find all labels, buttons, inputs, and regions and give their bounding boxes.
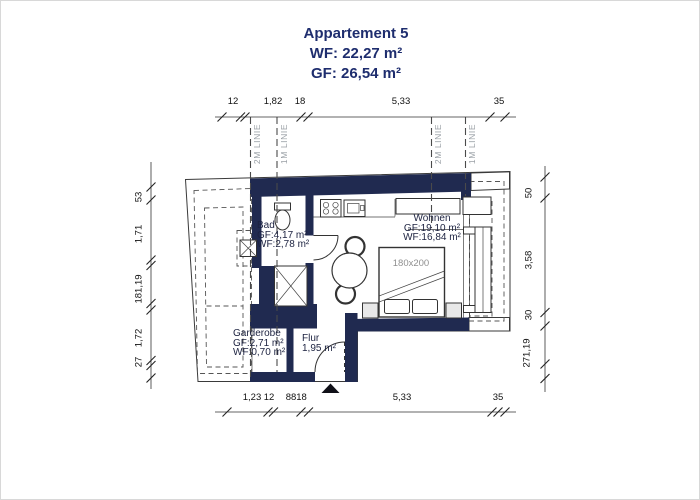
- height-line-label-2m-right: 2M LINIE: [433, 124, 443, 164]
- stove-fixture: [321, 200, 342, 218]
- pillow: [413, 300, 438, 314]
- pillow: [385, 300, 410, 314]
- entrance-arrow-icon: [322, 384, 340, 394]
- dim-bottom-3: 18: [296, 392, 307, 403]
- apartment-wf: WF: 22,27 m²: [278, 44, 434, 64]
- title-block: Appartement 5 WF: 22,27 m² GF: 26,54 m²: [278, 24, 434, 84]
- room-label-garderobe: Garderobe GF:2,71 m² WF:0,70 m²: [233, 329, 285, 358]
- dim-top-2: 18: [295, 96, 306, 107]
- nightstand: [363, 303, 379, 318]
- dim-left-1: 1,71: [134, 225, 145, 244]
- dim-left-2: 181,19: [134, 274, 145, 303]
- dormer-niche: [463, 197, 491, 215]
- apartment-gf: GF: 26,54 m²: [278, 64, 434, 84]
- dim-bottom-5: 35: [493, 392, 504, 403]
- dim-left-4: 27: [134, 357, 145, 368]
- table-chairs: [332, 237, 367, 304]
- round-table: [332, 253, 367, 288]
- dim-right-2: 30: [524, 310, 535, 321]
- dim-right-0: 50: [524, 188, 535, 199]
- dim-bottom-4: 5,33: [393, 392, 412, 403]
- chimney-shaft: [240, 240, 257, 257]
- room-label-wohnen: Wohnen GF:19,10 m² WF:16,84 m²: [398, 214, 466, 243]
- wohnen-wf: WF:16,84 m²: [398, 233, 466, 243]
- wardrobe-counter: [396, 199, 460, 215]
- bed-size-label: 180x200: [391, 259, 431, 269]
- floor-plan-page: Appartement 5 WF: 22,27 m² GF: 26,54 m² …: [0, 0, 700, 500]
- room-label-bad: Bad GF:4,17 m² WF:2,78 m²: [257, 221, 309, 250]
- dim-right-1: 3,58: [524, 251, 535, 270]
- height-line-label-2m-left: 2M LINIE: [252, 124, 262, 164]
- dim-bottom-2: 88: [286, 392, 297, 403]
- bad-wf: WF:2,78 m²: [257, 240, 309, 250]
- apartment-title: Appartement 5: [278, 24, 434, 44]
- dim-right-3: 271,19: [522, 338, 533, 367]
- room-label-flur: Flur 1,95 m²: [302, 334, 336, 353]
- dim-top-4: 35: [494, 96, 505, 107]
- dim-top-3: 5,33: [392, 96, 411, 107]
- bathroom-door: [314, 236, 339, 261]
- shower-fixture: [275, 266, 308, 306]
- sink-fixture: [344, 200, 365, 217]
- dim-left-3: 1,72: [134, 329, 145, 348]
- dim-left-0: 53: [134, 192, 145, 203]
- dim-top-1: 1,82: [264, 96, 283, 107]
- height-line-label-1m-left: 1M LINIE: [279, 124, 289, 164]
- height-line-label-1m-right: 1M LINIE: [467, 124, 477, 164]
- dim-top-0: 12: [228, 96, 239, 107]
- flur-area: 1,95 m²: [302, 344, 336, 354]
- nightstand: [446, 303, 462, 318]
- garderobe-wf: WF:0,70 m²: [233, 348, 285, 358]
- dim-bottom-1: 12: [264, 392, 275, 403]
- dim-bottom-0: 1,23: [243, 392, 262, 403]
